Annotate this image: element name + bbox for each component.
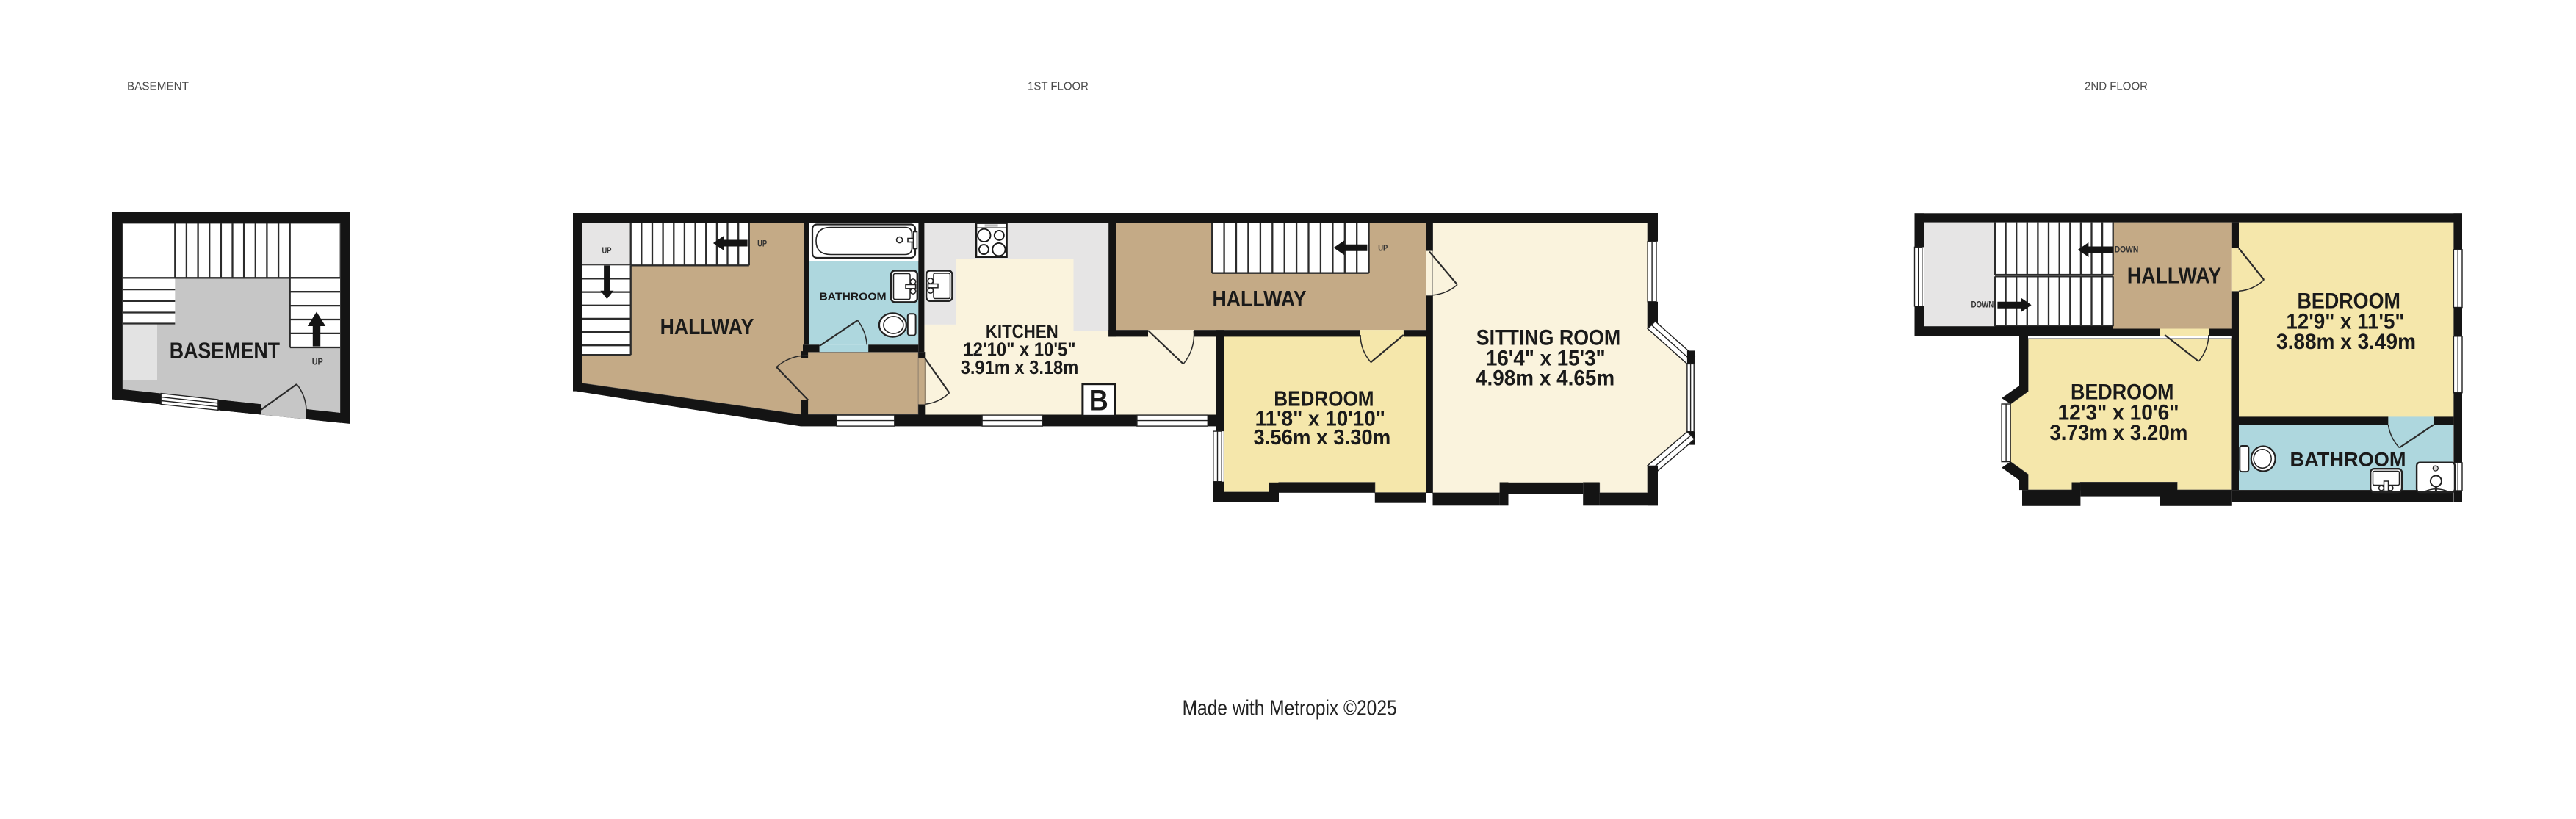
- svg-text:UP: UP: [312, 356, 323, 367]
- svg-text:B: B: [1089, 385, 1108, 417]
- svg-text:HALLWAY: HALLWAY: [660, 314, 754, 339]
- svg-text:UP: UP: [757, 238, 767, 248]
- svg-text:3.88m x 3.49m: 3.88m x 3.49m: [2276, 330, 2416, 354]
- svg-text:DOWN: DOWN: [1971, 300, 1994, 310]
- svg-text:UP: UP: [1378, 243, 1388, 253]
- svg-text:3.56m x 3.30m: 3.56m x 3.30m: [1253, 426, 1390, 450]
- svg-text:BASEMENT: BASEMENT: [127, 81, 189, 93]
- svg-text:2ND FLOOR: 2ND FLOOR: [2085, 81, 2148, 93]
- svg-text:HALLWAY: HALLWAY: [2127, 264, 2221, 289]
- svg-text:BATHROOM: BATHROOM: [819, 292, 886, 303]
- svg-text:3.91m x 3.18m: 3.91m x 3.18m: [961, 358, 1079, 378]
- svg-text:BASEMENT: BASEMENT: [170, 337, 280, 363]
- svg-text:BATHROOM: BATHROOM: [2290, 449, 2406, 471]
- svg-text:1ST FLOOR: 1ST FLOOR: [1028, 80, 1089, 93]
- svg-text:4.98m x 4.65m: 4.98m x 4.65m: [1476, 367, 1614, 391]
- svg-text:Made with Metropix ©2025: Made with Metropix ©2025: [1183, 697, 1397, 721]
- svg-text:UP: UP: [602, 245, 612, 256]
- svg-text:3.73m x 3.20m: 3.73m x 3.20m: [2049, 421, 2187, 445]
- svg-text:HALLWAY: HALLWAY: [1213, 286, 1307, 311]
- svg-text:DOWN: DOWN: [2115, 245, 2139, 255]
